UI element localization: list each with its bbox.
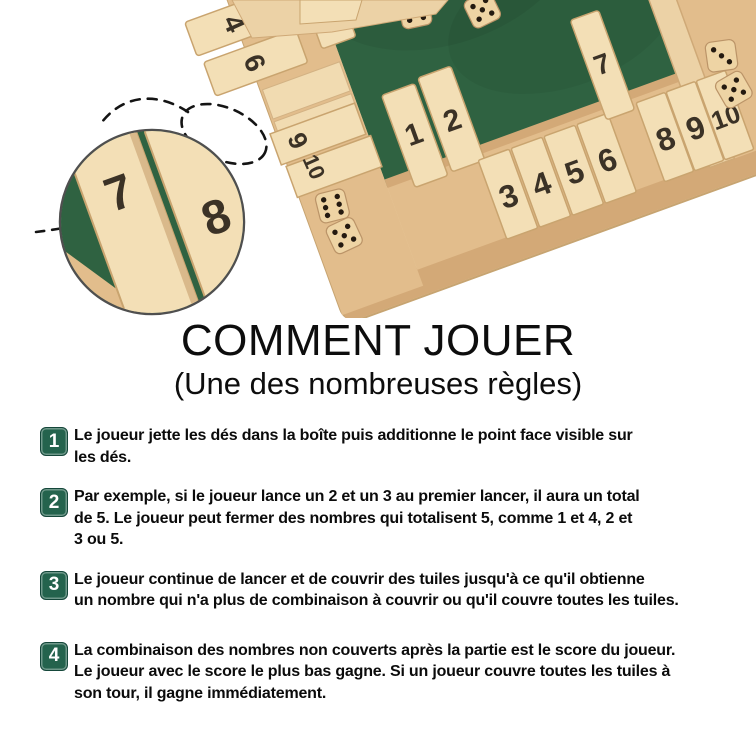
step-line: La combinaison des nombres non couverts …: [74, 640, 675, 662]
step-text: Le joueur continue de lancer et de couvr…: [74, 569, 679, 612]
instruction-step: 1 Le joueur jette les dés dans la boîte …: [40, 425, 752, 468]
step-line: Le joueur continue de lancer et de couvr…: [74, 569, 679, 591]
product-photo: 4 6 9 10 1 2 3 4: [0, 0, 756, 318]
instruction-step: 3 Le joueur continue de lancer et de cou…: [40, 569, 752, 612]
page-subtitle: (Une des nombreuses règles): [0, 364, 756, 404]
die-icon: [705, 39, 739, 73]
step-number-badge: 2: [40, 488, 68, 517]
instruction-step: 2 Par exemple, si le joueur lance un 2 e…: [40, 486, 752, 551]
step-line: Par exemple, si le joueur lance un 2 et …: [74, 486, 640, 508]
step-line: de 5. Le joueur peut fermer des nombres …: [74, 508, 640, 530]
step-line: son tour, il gagne immédiatement.: [74, 683, 675, 705]
board-photo-svg: 4 6 9 10 1 2 3 4: [0, 0, 756, 318]
step-number-badge: 4: [40, 642, 68, 671]
step-text: La combinaison des nombres non couverts …: [74, 640, 675, 705]
magnifier-inset: 7 8: [58, 90, 284, 318]
step-number-badge: 1: [40, 427, 68, 456]
step-line: un nombre qui n'a plus de combinaison à …: [74, 590, 679, 612]
step-line: les dés.: [74, 447, 633, 469]
step-line: Le joueur avec le score le plus bas gagn…: [74, 661, 675, 683]
instruction-step: 4 La combinaison des nombres non couvert…: [40, 640, 752, 705]
step-text: Le joueur jette les dés dans la boîte pu…: [74, 425, 633, 468]
dashed-connector-upper: [102, 99, 188, 122]
page: 4 6 9 10 1 2 3 4: [0, 0, 756, 704]
step-line: Le joueur jette les dés dans la boîte pu…: [74, 425, 633, 447]
instruction-steps: 1 Le joueur jette les dés dans la boîte …: [0, 404, 756, 704]
step-line: 3 ou 5.: [74, 529, 640, 551]
step-number-badge: 3: [40, 571, 68, 600]
step-text: Par exemple, si le joueur lance un 2 et …: [74, 486, 640, 551]
page-title: COMMENT JOUER: [0, 318, 756, 364]
